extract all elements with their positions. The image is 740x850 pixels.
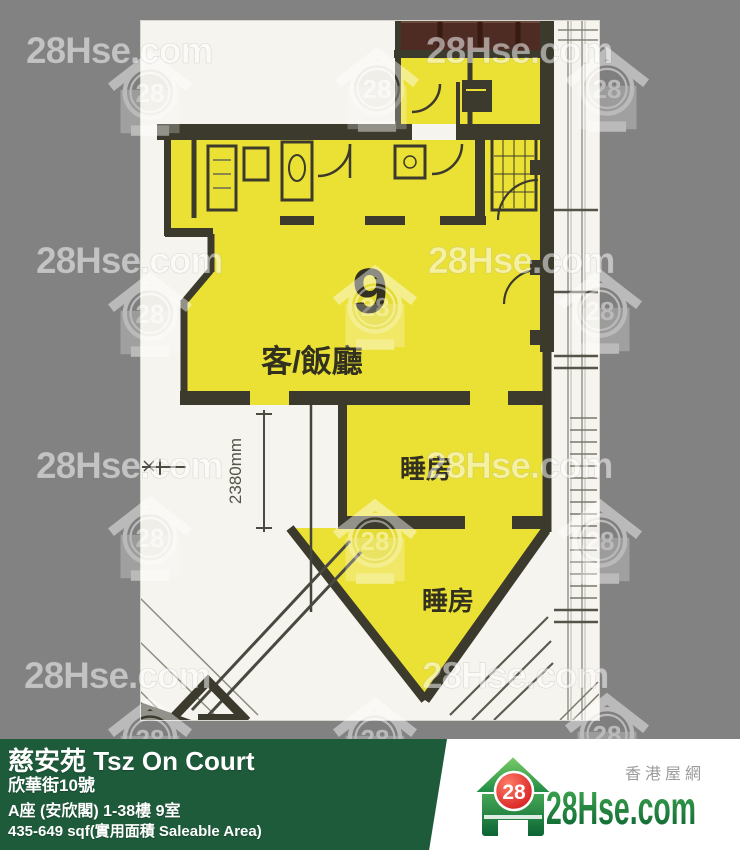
estate-address: 欣華街10號 <box>8 771 95 796</box>
brand-site-name-cn: 香港屋網 <box>625 765 705 783</box>
unit-number-label: 9 <box>352 255 388 327</box>
floor-plan: 2380mm 9 客/飯廳 睡房 睡房 <box>140 20 600 721</box>
estate-block-floor-unit: A座 (安欣閣) 1-38樓 9室 <box>8 797 180 821</box>
info-bar: 慈安苑 Tsz On Court 欣華街10號 A座 (安欣閣) 1-38樓 9… <box>0 739 447 850</box>
brand-logo-28hse: 28 28Hse.com 香港屋網 <box>450 739 740 850</box>
bedroom2-label: 睡房 <box>422 586 474 616</box>
brand-site-name: 28Hse.com <box>546 782 696 834</box>
bedroom1-label: 睡房 <box>400 454 452 484</box>
flyer-image: 2380mm 9 客/飯廳 睡房 睡房 28 <box>0 0 740 850</box>
estate-area: 435-649 sqf(實用面積 Saleable Area) <box>8 820 262 841</box>
dimension-label: 2380mm <box>226 438 245 504</box>
living-dining-label: 客/飯廳 <box>261 344 363 379</box>
brand-house-icon: 28 <box>474 756 552 836</box>
adjacent-unit <box>398 20 546 50</box>
brand-logo-number: 28 <box>502 781 526 804</box>
